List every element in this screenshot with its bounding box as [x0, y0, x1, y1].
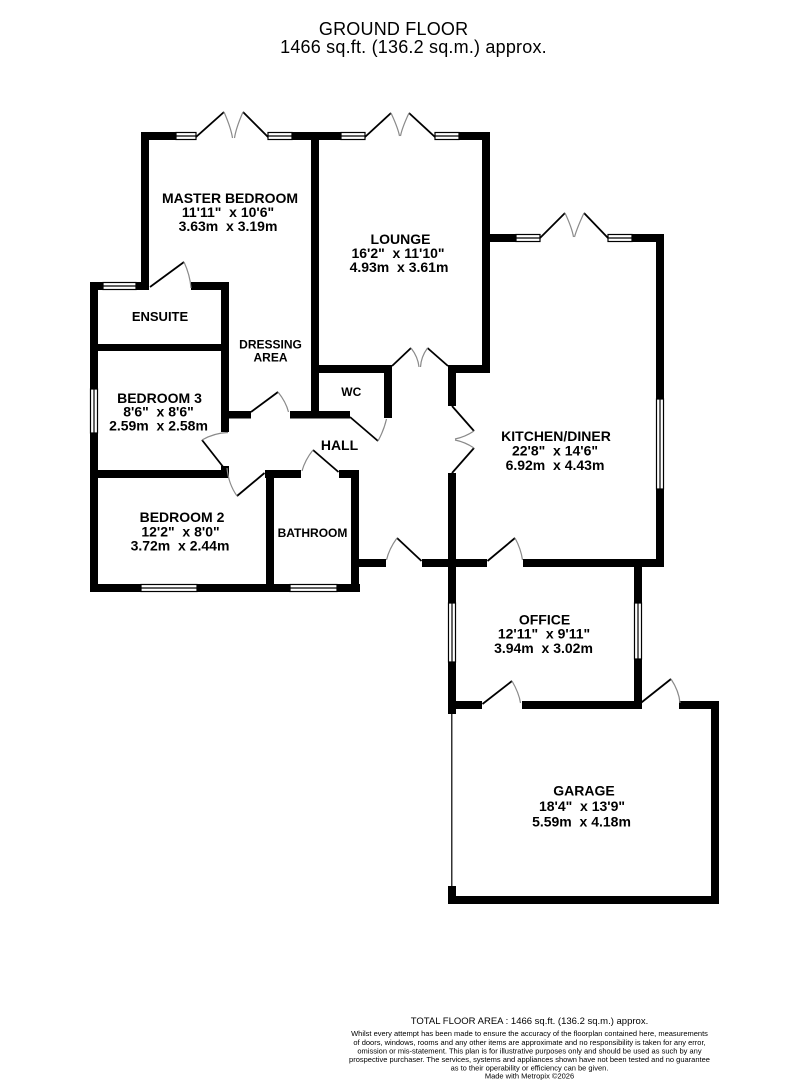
svg-text:AREA: AREA [253, 351, 287, 365]
svg-text:5.59m x 4.18m: 5.59m x 4.18m [532, 814, 631, 830]
svg-text:WC: WC [341, 385, 361, 399]
svg-text:ENSUITE: ENSUITE [132, 309, 189, 324]
svg-text:18'4" x 13'9": 18'4" x 13'9" [539, 798, 625, 814]
svg-text:6.92m x 4.43m: 6.92m x 4.43m [506, 457, 605, 473]
svg-text:GARAGE: GARAGE [553, 783, 614, 799]
svg-text:Made with Metropix ©2026: Made with Metropix ©2026 [485, 1071, 574, 1080]
svg-text:3.72m x 2.44m: 3.72m x 2.44m [131, 538, 230, 554]
svg-text:TOTAL FLOOR AREA : 1466 sq.ft.: TOTAL FLOOR AREA : 1466 sq.ft. (136.2 sq… [411, 1016, 648, 1027]
svg-text:BATHROOM: BATHROOM [278, 526, 348, 540]
svg-text:GROUND FLOOR: GROUND FLOOR [319, 19, 468, 39]
svg-text:HALL: HALL [321, 437, 359, 453]
svg-text:3.94m x 3.02m: 3.94m x 3.02m [494, 640, 593, 656]
svg-text:4.93m x 3.61m: 4.93m x 3.61m [350, 259, 449, 275]
svg-text:3.63m x 3.19m: 3.63m x 3.19m [179, 218, 278, 234]
svg-text:DRESSING: DRESSING [239, 338, 302, 352]
svg-text:Whilst every attempt has been: Whilst every attempt has been made to en… [351, 1029, 708, 1038]
svg-text:1466 sq.ft. (136.2 sq.m.) appr: 1466 sq.ft. (136.2 sq.m.) approx. [280, 37, 547, 57]
svg-text:2.59m x 2.58m: 2.59m x 2.58m [109, 418, 208, 434]
